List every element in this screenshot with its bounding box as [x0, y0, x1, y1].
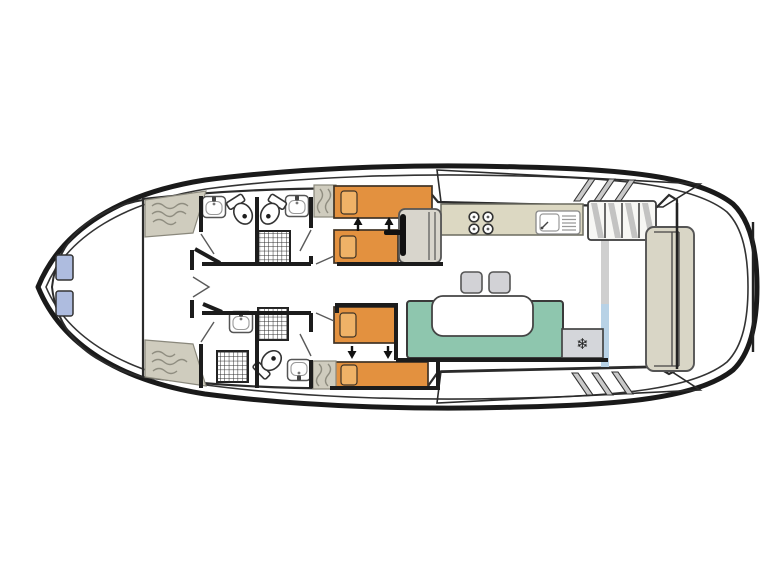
wardrobe-cabin-port	[313, 361, 336, 389]
track-strip	[601, 240, 609, 304]
bed-pillow	[341, 365, 357, 385]
bed-pillow	[341, 191, 357, 214]
bed-pillow	[340, 313, 356, 337]
stool	[461, 272, 482, 293]
bow-pillow	[56, 291, 73, 316]
aft-bench	[646, 227, 694, 371]
shower-tray	[258, 231, 290, 263]
aft-deck	[646, 227, 694, 371]
steering-wheel-icon	[400, 214, 406, 256]
deck-plan-svg: ❄	[0, 0, 768, 576]
boat-floor-plan: ❄	[0, 0, 768, 576]
wardrobe-cabin-starboard	[314, 185, 336, 217]
washbasin	[203, 197, 226, 218]
sink-drainer-icon	[536, 211, 580, 234]
shower-tray	[217, 351, 248, 382]
dinette-table	[432, 296, 533, 336]
washbasin	[286, 196, 309, 217]
stool	[489, 272, 510, 293]
bow-pillow	[56, 255, 73, 280]
snowflake-icon: ❄	[576, 335, 589, 353]
washbasin	[288, 360, 311, 381]
bed-pillow	[340, 236, 356, 258]
